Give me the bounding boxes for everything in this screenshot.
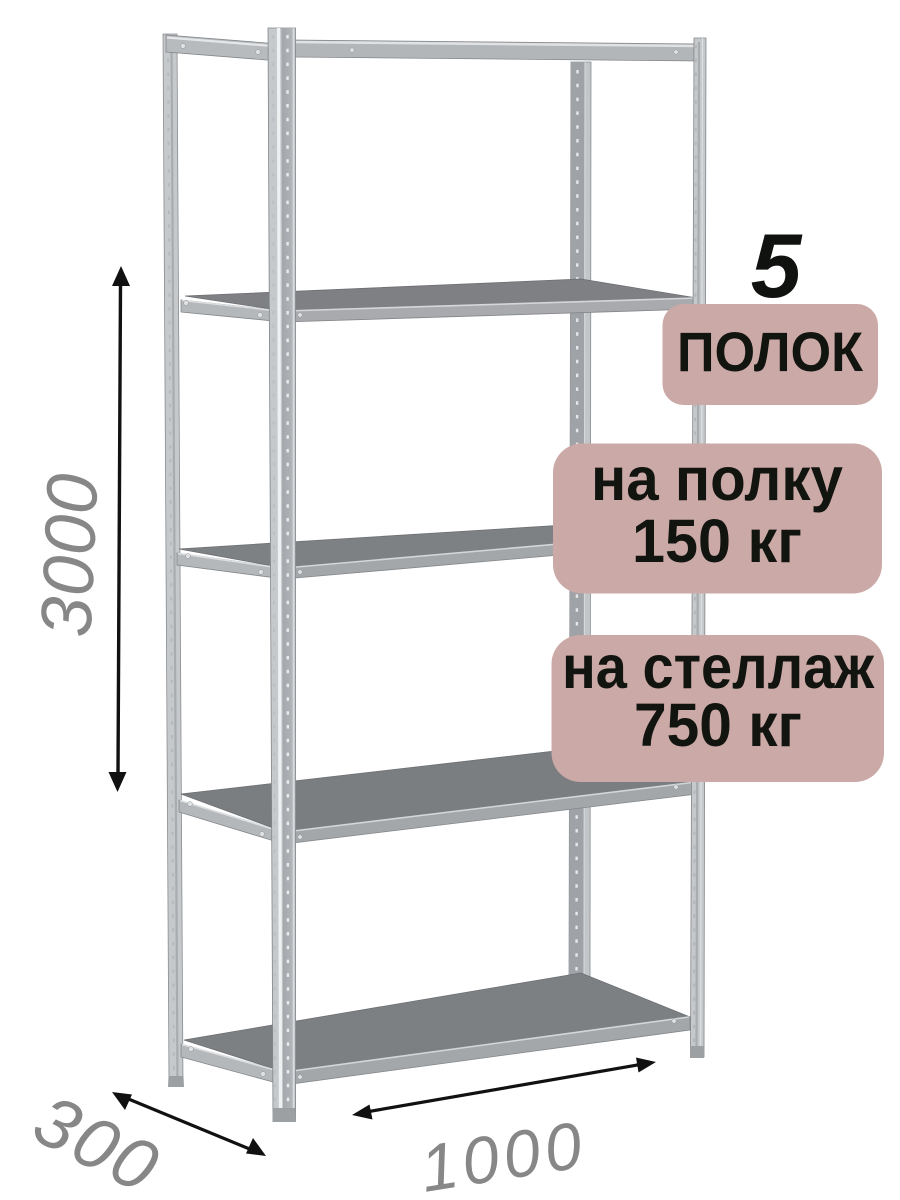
svg-text:750 кг: 750 кг <box>634 691 802 759</box>
svg-text:на полку: на полку <box>591 445 843 513</box>
svg-text:5: 5 <box>751 216 803 317</box>
svg-text:150 кг: 150 кг <box>632 507 802 575</box>
svg-text:3000: 3000 <box>26 471 113 639</box>
svg-text:ПОЛОК: ПОЛОК <box>677 320 864 383</box>
